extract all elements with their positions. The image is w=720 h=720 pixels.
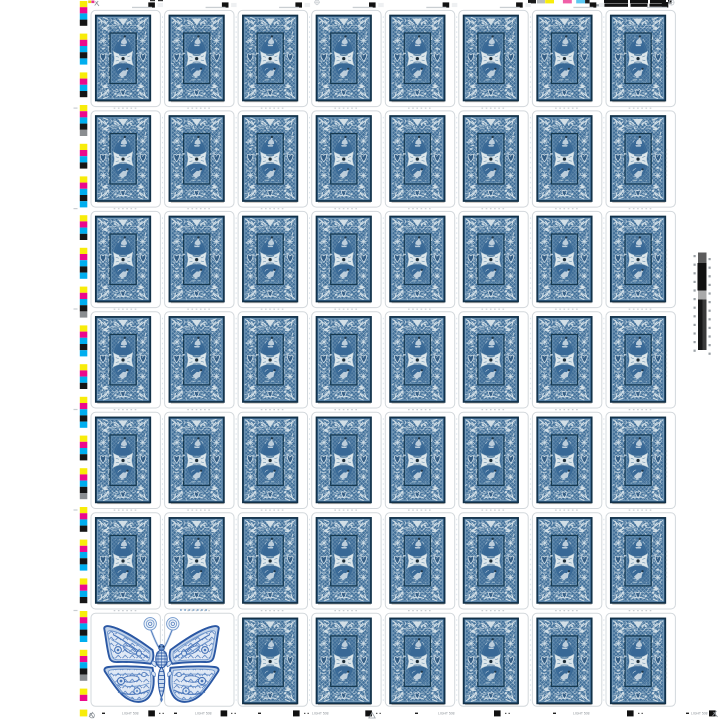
svg-text:LIGHT 508: LIGHT 508 (438, 712, 455, 716)
svg-text:LIGHT 508: LIGHT 508 (122, 712, 139, 716)
svg-text:LIGHT 508: LIGHT 508 (573, 712, 590, 716)
svg-text:LIGHT 508: LIGHT 508 (195, 712, 212, 716)
svg-text:LIGHT 508: LIGHT 508 (691, 712, 708, 716)
svg-text:LIGHT 508: LIGHT 508 (312, 712, 329, 716)
